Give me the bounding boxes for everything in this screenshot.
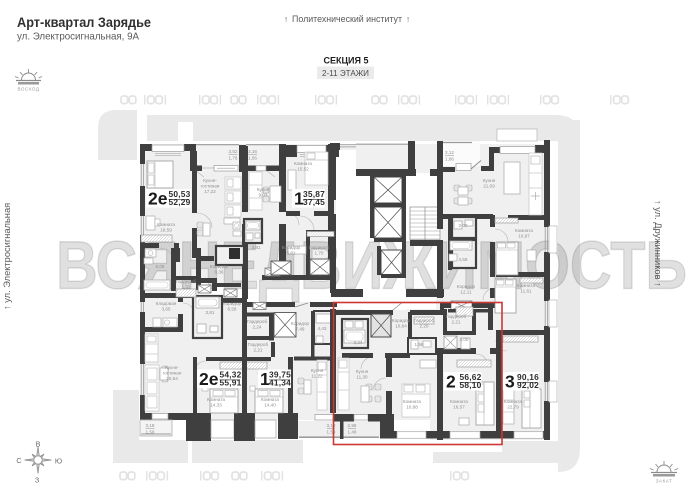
svg-text:4,43: 4,43 [318,326,327,331]
svg-text:11,30: 11,30 [356,375,368,380]
svg-text:З: З [35,476,39,485]
svg-text:1,31: 1,31 [182,285,191,290]
svg-text:3,24: 3,24 [354,340,363,345]
svg-text:Комната: Комната [294,161,312,166]
svg-text:12,11: 12,11 [460,290,472,295]
svg-text:1,70: 1,70 [315,251,324,256]
svg-text:Комната: Комната [504,399,522,404]
svg-text:3,12: 3,12 [445,150,454,155]
svg-text:Кладовая: Кладовая [156,301,177,306]
svg-text:↑: ↑ [284,14,288,24]
svg-text:Комната: Комната [207,397,225,402]
svg-text:Кухня: Кухня [483,178,496,183]
svg-text:1,76: 1,76 [229,155,238,160]
svg-text:10,88: 10,88 [406,405,418,410]
svg-text:7,49: 7,49 [296,327,305,332]
svg-text:Кухня: Кухня [356,369,369,374]
svg-text:1,59: 1,59 [415,342,424,347]
svg-text:2,96: 2,96 [348,423,357,428]
svg-text:5,81: 5,81 [287,251,296,256]
svg-text:Коридор: Коридор [223,301,242,306]
svg-text:Коридор: Коридор [457,284,476,289]
svg-text:16,57: 16,57 [453,405,465,410]
svg-text:22,79: 22,79 [507,405,519,410]
svg-text:14,40: 14,40 [264,403,276,408]
svg-text:20,64: 20,64 [166,376,178,381]
svg-text:СЕКЦИЯ 5: СЕКЦИЯ 5 [324,56,370,67]
svg-text:2,20: 2,20 [420,324,429,329]
svg-text:Кухня: Кухня [311,368,324,373]
svg-text:2,24: 2,24 [253,325,262,330]
svg-text:2е: 2е [148,189,168,209]
svg-text:Гардероб: Гардероб [248,342,269,347]
svg-text:1,48: 1,48 [348,429,357,434]
svg-text:Гардероб: Гардероб [247,319,268,324]
svg-text:92,02: 92,02 [517,380,539,390]
svg-text:Комната: Комната [450,399,468,404]
svg-text:2-11 ЭТАЖИ: 2-11 ЭТАЖИ [322,68,369,78]
svg-text:Политехнический институт: Политехнический институт [292,14,403,25]
svg-text:9,03: 9,03 [259,193,268,198]
svg-text:Комната: Комната [517,283,535,288]
svg-text:11,22: 11,22 [311,374,323,379]
svg-text:21,09: 21,09 [483,184,495,189]
svg-text:8,58: 8,58 [228,307,237,312]
svg-text:Коридор: Коридор [291,321,310,326]
svg-text:41,34: 41,34 [269,378,291,388]
svg-text:55,91: 55,91 [220,378,242,388]
svg-text:Ю: Ю [55,457,62,466]
svg-text:↑: ↑ [406,14,410,24]
svg-text:58,10: 58,10 [460,380,482,390]
svg-text:3,18: 3,18 [327,423,336,428]
svg-text:17,22: 17,22 [204,189,216,194]
svg-text:3,52: 3,52 [229,149,238,154]
svg-text:Кухня-: Кухня- [165,365,179,370]
svg-text:Кухня-: Кухня- [203,178,217,183]
svg-text:10,97: 10,97 [518,234,530,239]
svg-text:3,16: 3,16 [248,149,257,154]
svg-text:С: С [16,456,21,465]
svg-text:18,59: 18,59 [160,228,172,233]
svg-text:2,00: 2,00 [459,223,468,228]
svg-text:2е: 2е [199,369,219,389]
svg-text:Гардероб: Гардероб [414,318,435,323]
svg-text:Комната: Комната [403,399,421,404]
svg-text:ЗАКАТ: ЗАКАТ [656,479,673,484]
svg-text:Коридор: Коридор [392,318,411,323]
svg-text:Коридор: Коридор [282,245,301,250]
svg-text:14,33: 14,33 [210,403,222,408]
svg-text:гостиная: гостиная [163,371,182,376]
svg-text:11,61: 11,61 [520,289,532,294]
svg-text:3,81: 3,81 [206,310,215,315]
svg-text:52,29: 52,29 [169,197,191,207]
svg-text:3,18: 3,18 [146,423,155,428]
svg-text:ул. Электросигнальная, 9А: ул. Электросигнальная, 9А [17,32,139,43]
svg-text:2: 2 [446,372,456,392]
svg-text:Гардероб: Гардероб [176,279,197,284]
svg-text:1,59: 1,59 [146,429,155,434]
svg-text:В: В [36,440,41,449]
svg-text:3,65: 3,65 [162,307,171,312]
svg-text:Кухня: Кухня [257,187,270,192]
svg-text:8,36: 8,36 [215,270,224,275]
svg-text:1,59: 1,59 [327,429,336,434]
svg-text:Гардероб: Гардероб [446,314,467,319]
svg-text:Коридор: Коридор [210,264,229,269]
svg-text:2,21: 2,21 [254,348,263,353]
svg-text:↑ ул. Электросигнальная: ↑ ул. Электросигнальная [2,203,12,310]
svg-text:2,21: 2,21 [452,320,461,325]
svg-text:Комната: Комната [515,228,533,233]
svg-text:15,52: 15,52 [297,167,309,172]
svg-text:Комната: Комната [261,397,279,402]
svg-text:1,86: 1,86 [445,156,454,161]
svg-text:3: 3 [505,372,515,392]
svg-text:4,58: 4,58 [459,257,468,262]
svg-text:Комната: Комната [157,222,175,227]
svg-text:ВОСХОД: ВОСХОД [17,87,39,92]
svg-text:Арт-квартал Зарядье: Арт-квартал Зарядье [17,14,151,30]
svg-text:Гардероб: Гардероб [309,245,330,250]
svg-text:1,56: 1,56 [248,155,257,160]
svg-text:3,00: 3,00 [460,337,469,342]
svg-text:3,81: 3,81 [252,245,261,250]
svg-text:гостиная: гостиная [201,184,220,189]
svg-text:37,45: 37,45 [303,197,325,207]
svg-text:5,05: 5,05 [156,264,165,269]
svg-text:10,84: 10,84 [395,324,407,329]
